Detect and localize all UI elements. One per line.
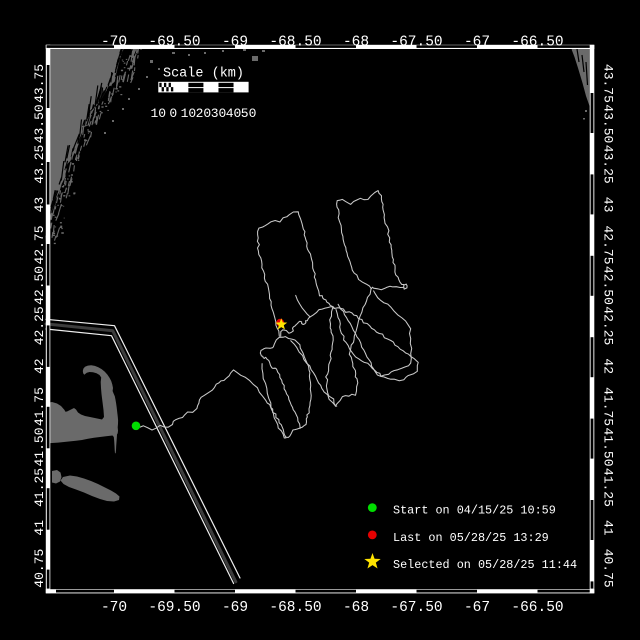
svg-text:Scale (km): Scale (km) <box>163 67 244 82</box>
svg-text:-68.50: -68.50 <box>269 600 321 616</box>
svg-text:42: 42 <box>32 358 47 374</box>
svg-text:20: 20 <box>196 106 212 121</box>
svg-text:-66.50: -66.50 <box>511 600 563 616</box>
svg-text:41.50: 41.50 <box>32 427 47 466</box>
svg-text:43: 43 <box>32 197 47 213</box>
svg-text:42.75: 42.75 <box>32 225 47 264</box>
svg-text:30: 30 <box>211 106 227 121</box>
svg-text:42.25: 42.25 <box>32 306 47 345</box>
svg-text:42.75: 42.75 <box>601 225 616 264</box>
svg-text:-67: -67 <box>464 34 490 50</box>
svg-text:0: 0 <box>169 106 177 121</box>
svg-text:43.25: 43.25 <box>32 145 47 184</box>
svg-text:41.75: 41.75 <box>601 387 616 426</box>
svg-text:43: 43 <box>601 197 616 213</box>
svg-text:-66.50: -66.50 <box>511 34 563 50</box>
svg-text:-69.50: -69.50 <box>148 600 200 616</box>
svg-text:42.50: 42.50 <box>32 266 47 305</box>
svg-text:41: 41 <box>601 520 616 536</box>
svg-text:50: 50 <box>241 106 257 121</box>
svg-text:10: 10 <box>181 106 197 121</box>
svg-text:43.50: 43.50 <box>32 104 47 143</box>
svg-text:42: 42 <box>601 358 616 374</box>
svg-text:-69: -69 <box>222 600 248 616</box>
svg-text:Last on 05/28/25 13:29: Last on 05/28/25 13:29 <box>393 531 549 545</box>
svg-text:-68: -68 <box>343 600 369 616</box>
svg-text:41: 41 <box>32 520 47 536</box>
svg-text:-70: -70 <box>101 34 127 50</box>
svg-text:-67.50: -67.50 <box>390 34 442 50</box>
svg-text:-69: -69 <box>222 34 248 50</box>
svg-text:41.25: 41.25 <box>32 468 47 507</box>
svg-text:Selected on 05/28/25 11:44: Selected on 05/28/25 11:44 <box>393 558 577 572</box>
svg-text:-69.50: -69.50 <box>148 34 200 50</box>
svg-text:41.75: 41.75 <box>32 387 47 426</box>
svg-text:Start on 04/15/25 10:59: Start on 04/15/25 10:59 <box>393 504 556 518</box>
svg-text:43.75: 43.75 <box>601 64 616 103</box>
svg-text:43.25: 43.25 <box>601 145 616 184</box>
svg-text:43.75: 43.75 <box>32 64 47 103</box>
svg-text:40: 40 <box>226 106 242 121</box>
svg-text:-67.50: -67.50 <box>390 600 442 616</box>
svg-text:41.50: 41.50 <box>601 427 616 466</box>
svg-text:40.75: 40.75 <box>601 549 616 588</box>
svg-text:41.25: 41.25 <box>601 468 616 507</box>
svg-text:-68: -68 <box>343 34 369 50</box>
svg-text:-70: -70 <box>101 600 127 616</box>
svg-text:42.25: 42.25 <box>601 306 616 345</box>
svg-text:42.50: 42.50 <box>601 266 616 305</box>
svg-text:40.75: 40.75 <box>32 549 47 588</box>
svg-text:43.50: 43.50 <box>601 104 616 143</box>
svg-text:-67: -67 <box>464 600 490 616</box>
svg-text:10: 10 <box>150 106 166 121</box>
svg-text:-68.50: -68.50 <box>269 34 321 50</box>
